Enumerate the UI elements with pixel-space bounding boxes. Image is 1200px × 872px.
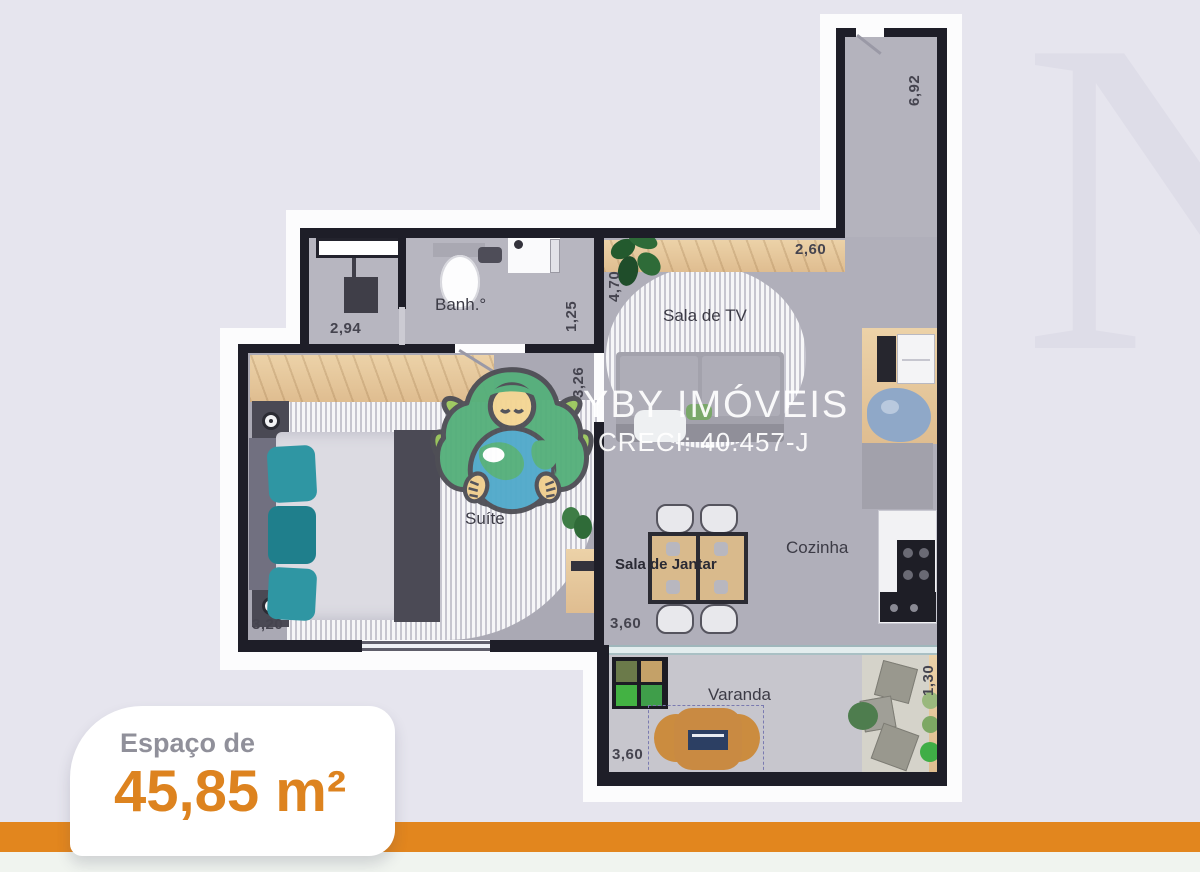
- washing-machine: [344, 277, 378, 313]
- bath-towel: [550, 239, 560, 273]
- brand-watermark: YBY IMÓVEIS: [583, 384, 849, 427]
- dim-varanda-width: 3,60: [612, 746, 643, 763]
- varanda-table: [674, 708, 742, 770]
- wall-varanda-left: [597, 645, 609, 786]
- dim-entry-corridor: 6,92: [906, 75, 923, 106]
- background-watermark-letter: N: [1022, 0, 1200, 422]
- wall-suite-left: [238, 344, 248, 652]
- varanda-sliding-door: [609, 645, 937, 655]
- kitchen-sink: [867, 388, 931, 442]
- area-badge-value: 45,85 m²: [114, 760, 346, 824]
- bed-pillow-teal: [267, 445, 318, 503]
- wall-corridor-left: [836, 28, 845, 235]
- wall-suite-bottom-left: [238, 640, 362, 652]
- cooktop: [897, 540, 935, 592]
- bed-pillow-teal: [268, 506, 316, 564]
- room-label-sala-jantar: Sala de Jantar: [615, 556, 717, 573]
- wall-suite-bottom-right: [490, 640, 604, 652]
- suite-window: [362, 641, 490, 651]
- wall-bottom: [597, 772, 947, 786]
- dim-bath-width: 1,25: [563, 301, 580, 332]
- wall-corridor-top-right: [884, 28, 947, 37]
- dim-suite-width: 3,20: [252, 616, 283, 633]
- wall-bath-right: [594, 228, 604, 344]
- bath-sink: [478, 247, 502, 263]
- shower-head-icon: [514, 240, 523, 249]
- yby-mascot-logo-icon: [428, 358, 596, 530]
- kitchen-tall-unit: [877, 336, 896, 382]
- dining-chair: [700, 604, 738, 634]
- floor-entry-corridor: [845, 37, 937, 237]
- dim-laundry-width: 2,94: [330, 320, 361, 337]
- dim-sala-tv-depth: 4,70: [606, 271, 623, 302]
- wall-suite-top-right: [525, 344, 604, 353]
- area-badge: Espaço de 45,85 m²: [70, 706, 395, 856]
- fridge: [897, 334, 935, 384]
- wall-corridor-top-left: [836, 28, 856, 37]
- dining-chair: [656, 604, 694, 634]
- dim-dining-width: 3,60: [610, 615, 641, 632]
- dim-varanda-depth: 1,30: [920, 665, 937, 696]
- laundry-shelf: [316, 238, 402, 258]
- room-label-varanda: Varanda: [708, 685, 771, 705]
- dining-chair: [700, 504, 738, 534]
- bed-pillow-teal: [267, 567, 318, 621]
- room-label-banheiro: Banh.°: [435, 295, 486, 315]
- kitchen-counter-mid: [862, 443, 933, 509]
- deck-plant: [848, 702, 878, 730]
- oven: [880, 592, 936, 622]
- wall-top-main: [300, 228, 845, 238]
- dim-sala-tv-width: 2,60: [795, 241, 826, 258]
- wall-right: [937, 28, 947, 786]
- area-badge-prefix: Espaço de: [120, 728, 255, 759]
- wall-left-upper: [300, 228, 309, 348]
- varanda-planter-boxes: [612, 657, 668, 709]
- laundry-door-leaf: [399, 307, 405, 345]
- room-label-cozinha: Cozinha: [786, 538, 848, 558]
- floorplan-image: N: [0, 0, 1200, 872]
- creci-watermark: CRECI: 40.457-J: [598, 427, 810, 458]
- wall-suite-top-left: [238, 344, 455, 353]
- wall-laundry-divider: [398, 237, 406, 309]
- dining-chair: [656, 504, 694, 534]
- room-label-sala-tv: Sala de TV: [663, 306, 747, 326]
- washing-machine-hose: [352, 258, 356, 280]
